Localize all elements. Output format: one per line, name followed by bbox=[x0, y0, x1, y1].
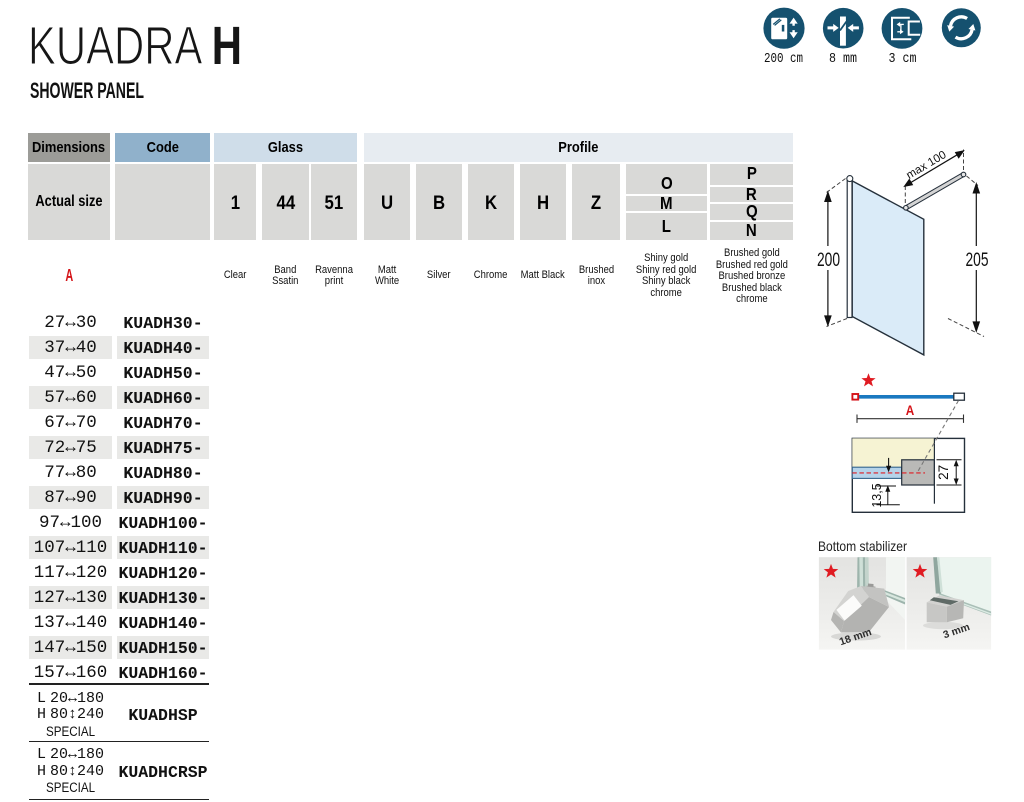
svg-text:max 100: max 100 bbox=[904, 149, 948, 182]
svg-text:3 cm: 3 cm bbox=[889, 51, 917, 67]
svg-text:200 cm: 200 cm bbox=[764, 51, 803, 67]
svg-text:205: 205 bbox=[966, 249, 989, 271]
svg-text:13,5: 13,5 bbox=[870, 483, 884, 507]
svg-text:8 mm: 8 mm bbox=[829, 51, 857, 67]
svg-text:27: 27 bbox=[936, 465, 951, 480]
svg-text:A: A bbox=[906, 403, 915, 418]
svg-text:200: 200 bbox=[817, 249, 840, 271]
